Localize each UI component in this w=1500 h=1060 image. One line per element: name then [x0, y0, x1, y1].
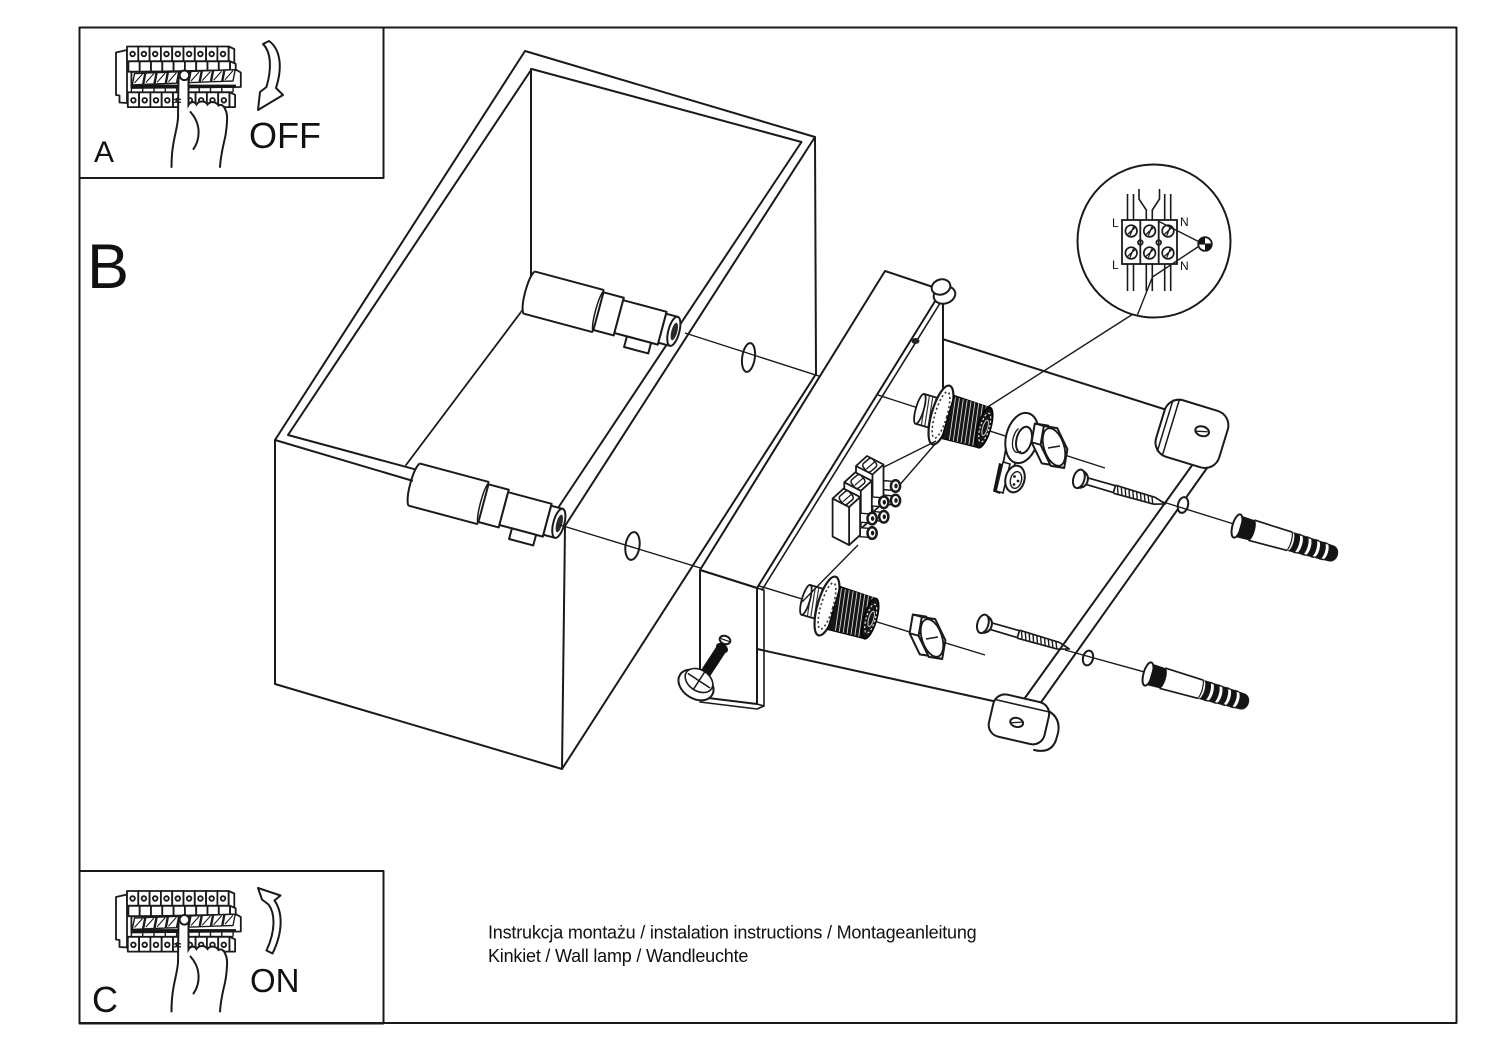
svg-text:L: L [1112, 258, 1119, 272]
svg-text:Instrukcja montażu / instalati: Instrukcja montażu / instalation instruc… [488, 923, 976, 943]
svg-text:N: N [1180, 215, 1189, 229]
svg-text:B: B [87, 232, 129, 302]
svg-text:OFF: OFF [249, 115, 321, 156]
svg-text:A: A [94, 136, 114, 169]
svg-text:N: N [1180, 259, 1189, 273]
svg-text:ON: ON [250, 962, 300, 999]
svg-text:C: C [92, 979, 118, 1020]
svg-text:L: L [1112, 216, 1119, 230]
svg-text:Kinkiet / Wall lamp / Wandleuc: Kinkiet / Wall lamp / Wandleuchte [488, 946, 748, 966]
